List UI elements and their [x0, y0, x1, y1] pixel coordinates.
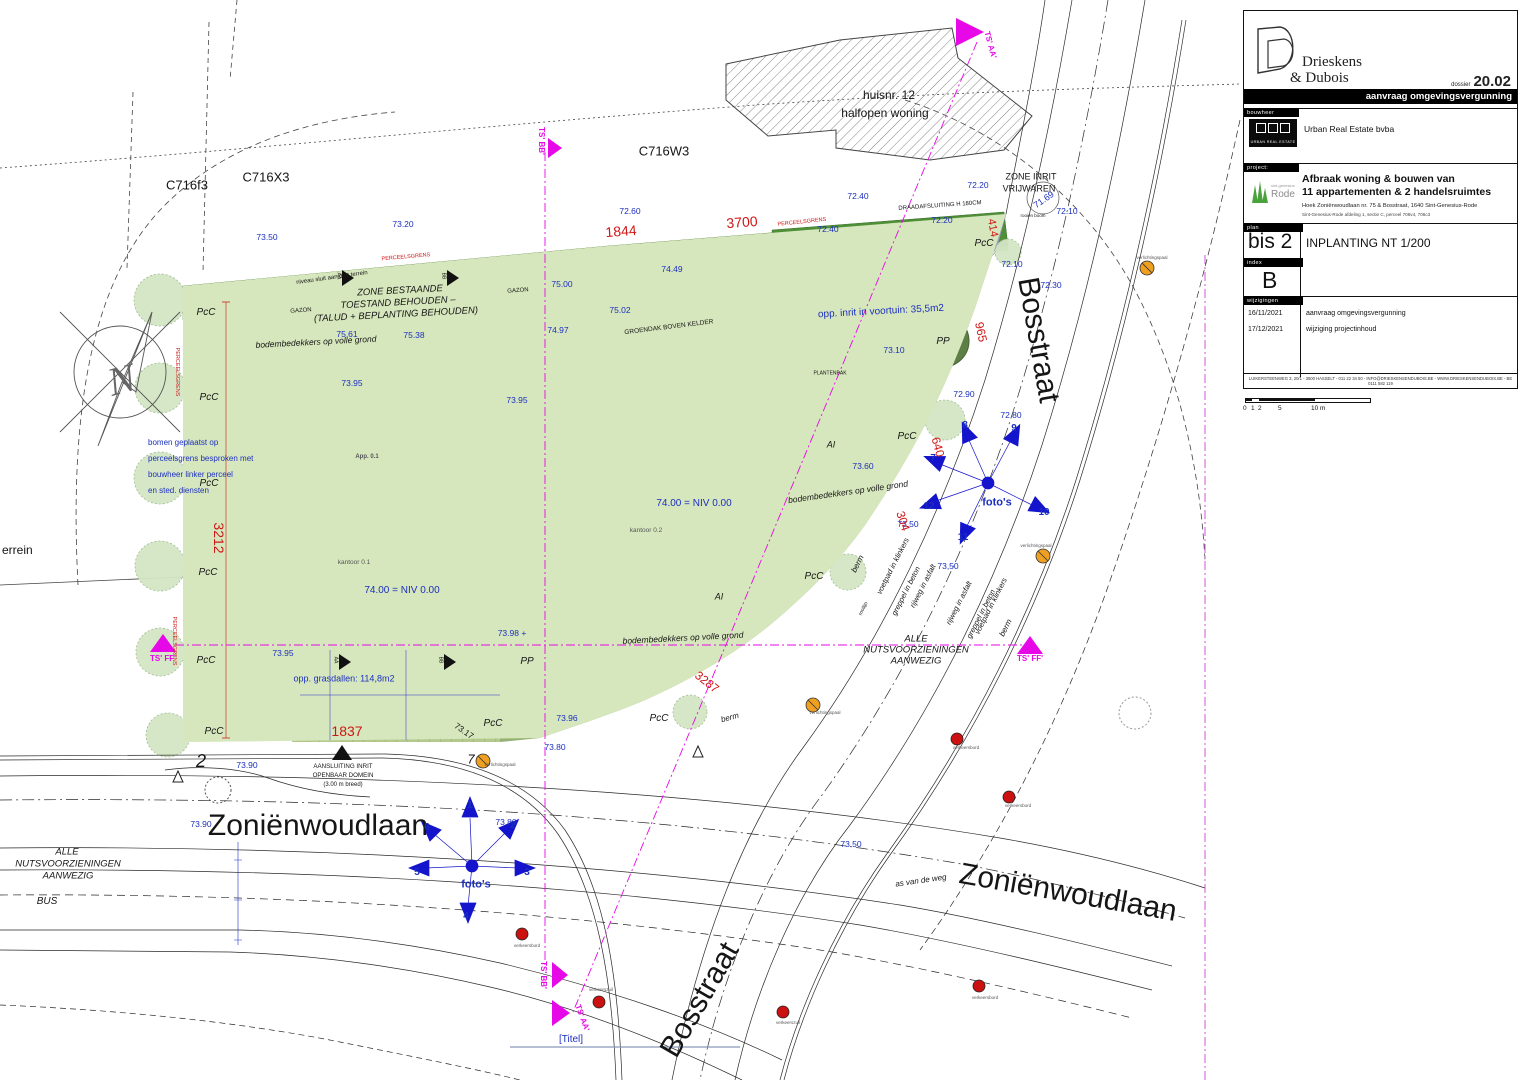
permit-banner: aanvraag omgevingsvergunning: [1244, 89, 1517, 104]
plan-title: INPLANTING NT 1/200: [1306, 236, 1431, 250]
scale-10: 10 m: [1311, 405, 1325, 412]
revision-desc-2: wijziging projectinhoud: [1306, 326, 1376, 333]
project-title-1: Afbraak woning & bouwen van: [1302, 173, 1455, 185]
plan-code: bis 2: [1248, 230, 1292, 254]
project-address-1: Hoek Zoniënwoudlaan nr. 75 & Bosstraat, …: [1302, 203, 1477, 209]
index-value: B: [1262, 267, 1277, 294]
perceel-boundary: [183, 214, 1006, 742]
client-logo-text: URBAN REAL ESTATE: [1249, 140, 1297, 144]
scale-1: 1: [1251, 405, 1255, 412]
revision-date-1: 16/11/2021: [1248, 310, 1283, 317]
dossier-label: dossier: [1451, 82, 1470, 88]
municipality-logo-main: Rode: [1271, 189, 1295, 200]
photo-star-bottom: [409, 797, 535, 923]
section-label-index: index: [1244, 258, 1303, 267]
firm-footer: LUIKERSTEENWEG 3, 20/1 - 3500 HASSELT - …: [1244, 373, 1517, 388]
title-block: Drieskens & Dubois ARCHITECTEN dossier20…: [1243, 10, 1518, 389]
revision-desc-1: aanvraag omgevingsvergunning: [1306, 310, 1406, 317]
firm-name: Drieskens & Dubois: [1302, 55, 1362, 87]
section-label-revisions: wijzigingen: [1244, 296, 1303, 305]
municipality-logo-small: sint-genesius: [1271, 183, 1295, 188]
client-name: Urban Real Estate bvba: [1304, 124, 1394, 134]
scale-0: 0: [1243, 405, 1247, 412]
scale-bar: 0 1 2 5 10 m: [1245, 398, 1371, 414]
project-title-2: 11 appartementen & 2 handelsruimtes: [1302, 186, 1491, 198]
revision-date-2: 17/12/2021: [1248, 326, 1283, 333]
municipality-logo: sint-genesius Rode: [1250, 177, 1300, 209]
dossier: dossier20.02: [1451, 73, 1511, 90]
project-address-2: Sint-Genesius-Rode afdeling 1, sectie C,…: [1302, 212, 1430, 217]
scale-5: 5: [1278, 405, 1282, 412]
north-letter: N: [102, 354, 143, 405]
scale-2: 2: [1258, 405, 1262, 412]
site-plan-sheet: { "colors": { "blk": "#151515", "blu": "…: [0, 0, 1529, 1080]
section-label-project: project:: [1244, 163, 1299, 172]
neighbour-house: [726, 28, 1032, 160]
dossier-number: 20.02: [1473, 73, 1511, 90]
section-label-client: bouwheer: [1244, 108, 1299, 117]
client-logo: URBAN REAL ESTATE: [1249, 119, 1297, 147]
